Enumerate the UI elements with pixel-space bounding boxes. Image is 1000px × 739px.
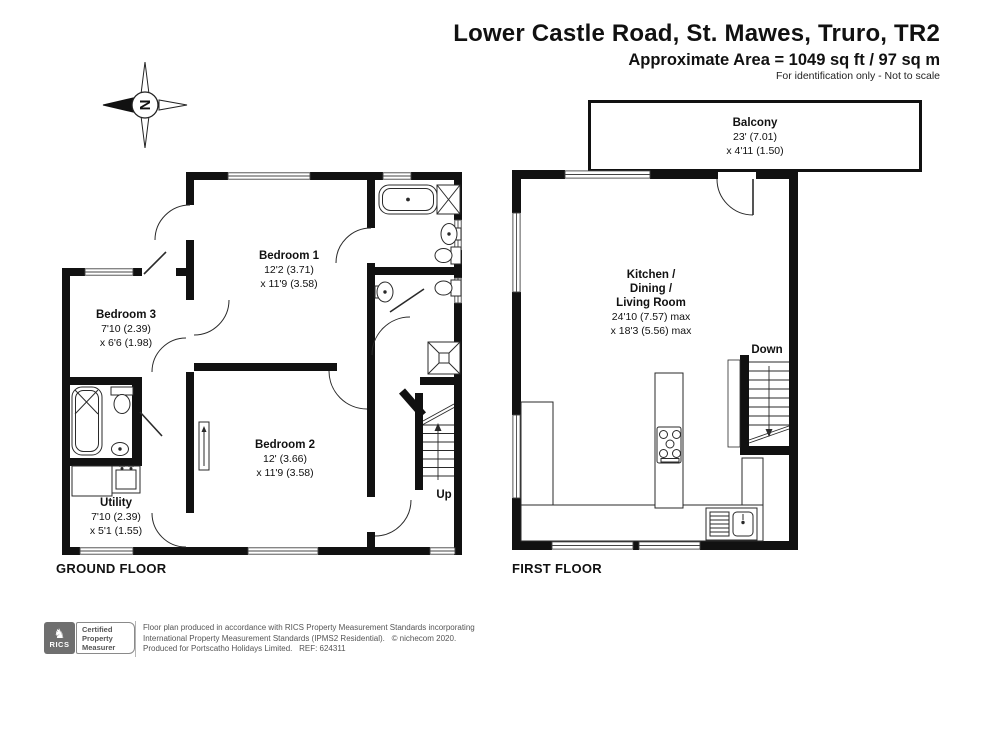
stairs-up — [423, 404, 454, 480]
certified-property-measurer-badge: Certified Property Measurer — [76, 622, 135, 654]
radiator — [199, 422, 209, 470]
small-sink-icon — [112, 443, 129, 456]
first-doors — [717, 179, 753, 215]
stairs-down-label: Down — [747, 344, 787, 356]
footer-divider — [135, 621, 136, 657]
hob-icon — [657, 427, 681, 463]
room-label-utility: Utility 7'10 (2.39) x 5'1 (1.55) — [46, 496, 186, 538]
kitchen-fixtures — [521, 373, 763, 541]
page-title: Lower Castle Road, St. Mawes, Truro, TR2 — [453, 20, 940, 48]
ground-floor-label: GROUND FLOOR — [56, 561, 166, 576]
sink-icon — [375, 282, 393, 302]
room-label-balcony: Balcony 23' (7.01) x 4'11 (1.50) — [685, 116, 825, 158]
room-label-kitchen-dining-living: Kitchen / Dining / Living Room 24'10 (7.… — [581, 268, 721, 338]
approximate-area: Approximate Area = 1049 sq ft / 97 sq m — [628, 51, 940, 70]
first-floor-label: FIRST FLOOR — [512, 561, 602, 576]
bathtub-icon — [379, 185, 437, 214]
compass-letter: N — [137, 100, 154, 111]
rics-brand: RICS — [50, 640, 70, 649]
counter-right — [742, 458, 763, 505]
shower-over-bath-icon — [437, 185, 460, 214]
utility-counter — [72, 466, 112, 496]
compass-north-icon: N — [103, 62, 187, 148]
utility-sink-icon — [112, 466, 140, 493]
stairs-up-label: Up — [424, 489, 464, 501]
rics-lion-icon: ♞ — [54, 627, 66, 640]
room-label-bedroom1: Bedroom 1 12'2 (3.71) x 11'9 (3.58) — [219, 249, 359, 291]
counter-left — [521, 402, 553, 508]
rics-logo: ♞ RICS — [44, 622, 75, 654]
toilet-icon — [435, 280, 461, 296]
toilet-icon — [435, 247, 461, 264]
kitchen-sink-icon — [706, 508, 757, 540]
shower-icon — [428, 342, 460, 374]
toilet-icon — [111, 387, 133, 414]
footer-disclaimer: Floor plan produced in accordance with R… — [143, 623, 475, 655]
bathtub-icon — [72, 387, 102, 455]
identification-note: For identification only - Not to scale — [776, 70, 940, 82]
room-label-bedroom2: Bedroom 2 12' (3.66) x 11'9 (3.58) — [215, 438, 355, 480]
room-label-bedroom3: Bedroom 3 7'10 (2.39) x 6'6 (1.98) — [56, 308, 196, 350]
stairs-down — [728, 360, 789, 447]
